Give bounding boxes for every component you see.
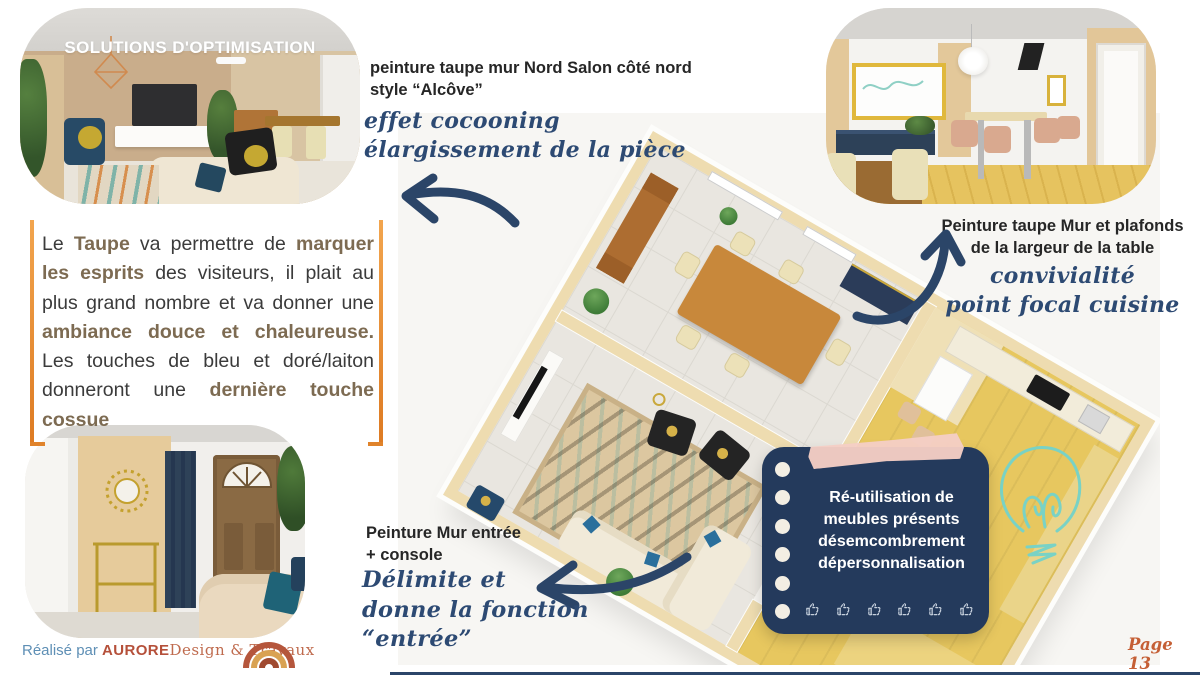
note-line: désemcombrement bbox=[800, 531, 983, 553]
note-dot-icon bbox=[775, 490, 790, 505]
note-line: dépersonnalisation bbox=[800, 553, 983, 575]
note-dot-icon bbox=[775, 547, 790, 562]
door-panel bbox=[255, 523, 275, 570]
note-dots bbox=[775, 462, 790, 619]
callout-label: style “Alcôve” bbox=[370, 80, 720, 102]
slide-title: SOLUTIONS D'OPTIMISATION bbox=[20, 38, 360, 58]
table-leg bbox=[978, 120, 985, 179]
photo-kitchen bbox=[826, 8, 1156, 204]
page-number: Page 13 bbox=[1128, 635, 1200, 673]
notes-card: Ré-utilisation de meubles présents désem… bbox=[762, 447, 989, 634]
cream-chair bbox=[826, 153, 856, 200]
intro-paragraph: Le Taupe va permettre de marquer les esp… bbox=[42, 230, 374, 435]
orange-bracket-left bbox=[30, 220, 34, 446]
callout-label: peinture taupe mur Nord Salon côté nord bbox=[370, 58, 720, 80]
navy-curtain bbox=[165, 451, 196, 609]
dining-table bbox=[265, 116, 340, 126]
thumbs-up-icon bbox=[927, 599, 946, 623]
table-leg bbox=[1024, 120, 1031, 179]
mustard-throw bbox=[244, 145, 268, 167]
tv bbox=[132, 84, 197, 125]
orange-bracket-right bbox=[379, 220, 383, 446]
callout-label: + console bbox=[366, 545, 606, 567]
bar-stool bbox=[1057, 116, 1080, 140]
callout-script-line: effet cocooning bbox=[364, 107, 720, 136]
callout-entry-script: Délimite et donne la fonction “entrée” bbox=[362, 566, 652, 655]
bar-stool bbox=[984, 126, 1010, 153]
tv-console bbox=[115, 126, 214, 148]
bar-stool bbox=[951, 120, 977, 147]
dining-chair bbox=[306, 126, 326, 159]
trailing-plant bbox=[20, 59, 47, 177]
callout-north-wall: peinture taupe mur Nord Salon côté nord … bbox=[370, 58, 720, 165]
white-door bbox=[1096, 43, 1146, 176]
note-dot-icon bbox=[775, 519, 790, 534]
note-dot-icon bbox=[775, 462, 790, 477]
rainbow-logo-icon bbox=[238, 630, 300, 670]
door-panel bbox=[224, 523, 244, 570]
navy-pillow bbox=[291, 557, 305, 591]
board-sketch-icon bbox=[859, 71, 929, 101]
thumbs-up-icon bbox=[866, 599, 885, 623]
sunburst-mirror-icon bbox=[101, 465, 153, 517]
arrow-to-living-photo-icon bbox=[393, 168, 518, 230]
callout-script-line: élargissement de la pièce bbox=[364, 136, 720, 165]
callout-entry-wall: Peinture Mur entrée + console bbox=[366, 523, 606, 567]
thumbs-up-icon bbox=[958, 599, 977, 623]
thumbs-up-icon bbox=[896, 599, 915, 623]
thumbs-up-icon bbox=[835, 599, 854, 623]
mustard-throw bbox=[78, 126, 102, 150]
callout-script-line: Délimite et bbox=[362, 566, 652, 596]
paragraph-segment: ambiance douce et chaleureuse. bbox=[42, 321, 374, 343]
plant bbox=[905, 116, 935, 136]
light-bulb-icon bbox=[983, 427, 1095, 579]
footer-prefix: Réalisé par bbox=[22, 642, 102, 659]
pendant-lamp bbox=[958, 47, 988, 74]
note-line: meubles présents bbox=[800, 509, 983, 531]
photo-living-room: SOLUTIONS D'OPTIMISATION bbox=[20, 8, 360, 204]
callout-label: Peinture Mur entrée bbox=[366, 523, 606, 545]
geometric-rug bbox=[78, 165, 160, 204]
yellow-window bbox=[1047, 75, 1066, 106]
white-door-left bbox=[25, 438, 81, 638]
brand-name: AURORE bbox=[102, 642, 169, 659]
thumbs-up-icon bbox=[804, 599, 823, 623]
note-dot-icon bbox=[775, 576, 790, 591]
note-dot-icon bbox=[775, 604, 790, 619]
fanlight-icon bbox=[221, 463, 273, 489]
photo-entrance bbox=[25, 425, 305, 638]
arrow-to-kitchen-photo-icon bbox=[845, 224, 970, 342]
callout-script-line: donne la fonction “entrée” bbox=[362, 596, 652, 655]
paragraph-segment: va permettre de bbox=[130, 233, 296, 255]
paragraph-segment: Le bbox=[42, 233, 74, 255]
paragraph-segment: Taupe bbox=[74, 233, 130, 255]
hanging-plant bbox=[277, 446, 305, 531]
thumbs-row bbox=[804, 599, 977, 623]
ac-unit bbox=[216, 57, 247, 64]
cream-chair bbox=[892, 149, 928, 200]
note-line: Ré-utilisation de bbox=[800, 487, 983, 509]
